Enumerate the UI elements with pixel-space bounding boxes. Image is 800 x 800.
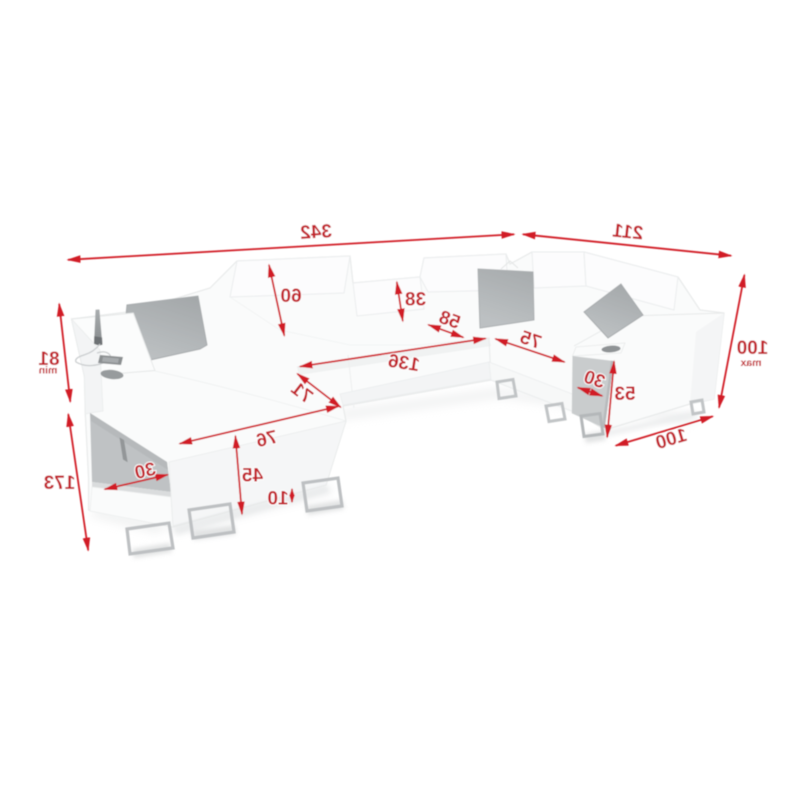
svg-text:173: 173 [44,473,76,494]
svg-text:342: 342 [300,221,333,244]
svg-text:max: max [740,357,761,369]
svg-text:60: 60 [280,286,301,307]
svg-text:100: 100 [653,425,689,454]
svg-text:211: 211 [611,220,644,244]
svg-text:45: 45 [242,466,264,487]
svg-text:38: 38 [405,290,426,311]
svg-text:10: 10 [267,489,288,510]
svg-text:53: 53 [614,384,635,405]
svg-text:100: 100 [737,338,769,359]
svg-text:min: min [39,365,58,377]
